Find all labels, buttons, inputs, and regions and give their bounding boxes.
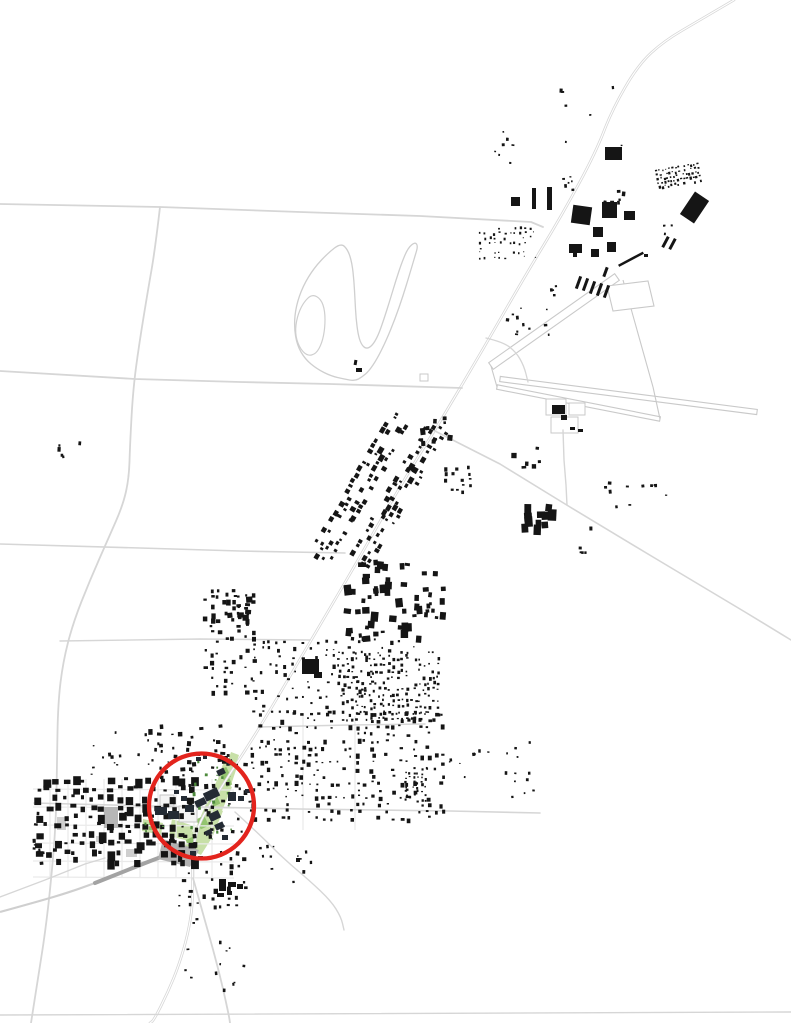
building-cluster-factory <box>521 504 556 535</box>
building-cluster-se-of-circle <box>259 845 312 883</box>
road-south-branch <box>193 878 230 1023</box>
figure-ground-map <box>0 0 791 1023</box>
building-cluster-east-dots <box>663 224 673 235</box>
building-cluster-dots-530 <box>579 527 593 554</box>
airport-runways <box>420 274 757 433</box>
road-airport-access-south <box>563 430 567 505</box>
building-cluster-trailer-park <box>479 226 536 259</box>
building-cluster-north-dots-1 <box>562 176 574 191</box>
road-road-640 <box>60 639 310 641</box>
road-road-550 <box>0 544 345 553</box>
road-se-spur <box>235 812 344 930</box>
road-north-road <box>0 204 543 227</box>
building-cluster-far-north-1 <box>494 131 514 164</box>
building-cluster-far-north-2 <box>559 86 622 146</box>
lake-outline <box>295 243 418 380</box>
road-main-highway <box>150 0 734 1023</box>
road-se-highway <box>433 430 791 640</box>
building-cluster-circle-north <box>148 724 230 774</box>
building-cluster-sparse-east <box>449 741 535 798</box>
roads-layer <box>0 0 791 1023</box>
building-cluster-downtown-north <box>91 731 185 779</box>
building-cluster-east-scatter <box>343 560 422 643</box>
railroad-line <box>0 851 178 912</box>
building-cluster-subdivision <box>337 651 440 722</box>
building-cluster-dots-480 <box>604 481 631 508</box>
building-cluster-lone-west <box>57 441 81 458</box>
building-cluster-mid-pair <box>511 447 541 469</box>
building-cluster-storage-ne <box>655 162 702 190</box>
road-mid-road <box>0 371 462 388</box>
road-bottom-edge-road <box>0 1012 791 1015</box>
road-west-road <box>31 207 160 1023</box>
building-cluster-houses-470 <box>444 466 472 494</box>
building-cluster-east-of-circle <box>251 711 446 823</box>
building-cluster-mid-dots <box>641 484 667 496</box>
map-stage <box>0 0 791 1023</box>
building-cluster-hangar-dots <box>550 285 557 296</box>
